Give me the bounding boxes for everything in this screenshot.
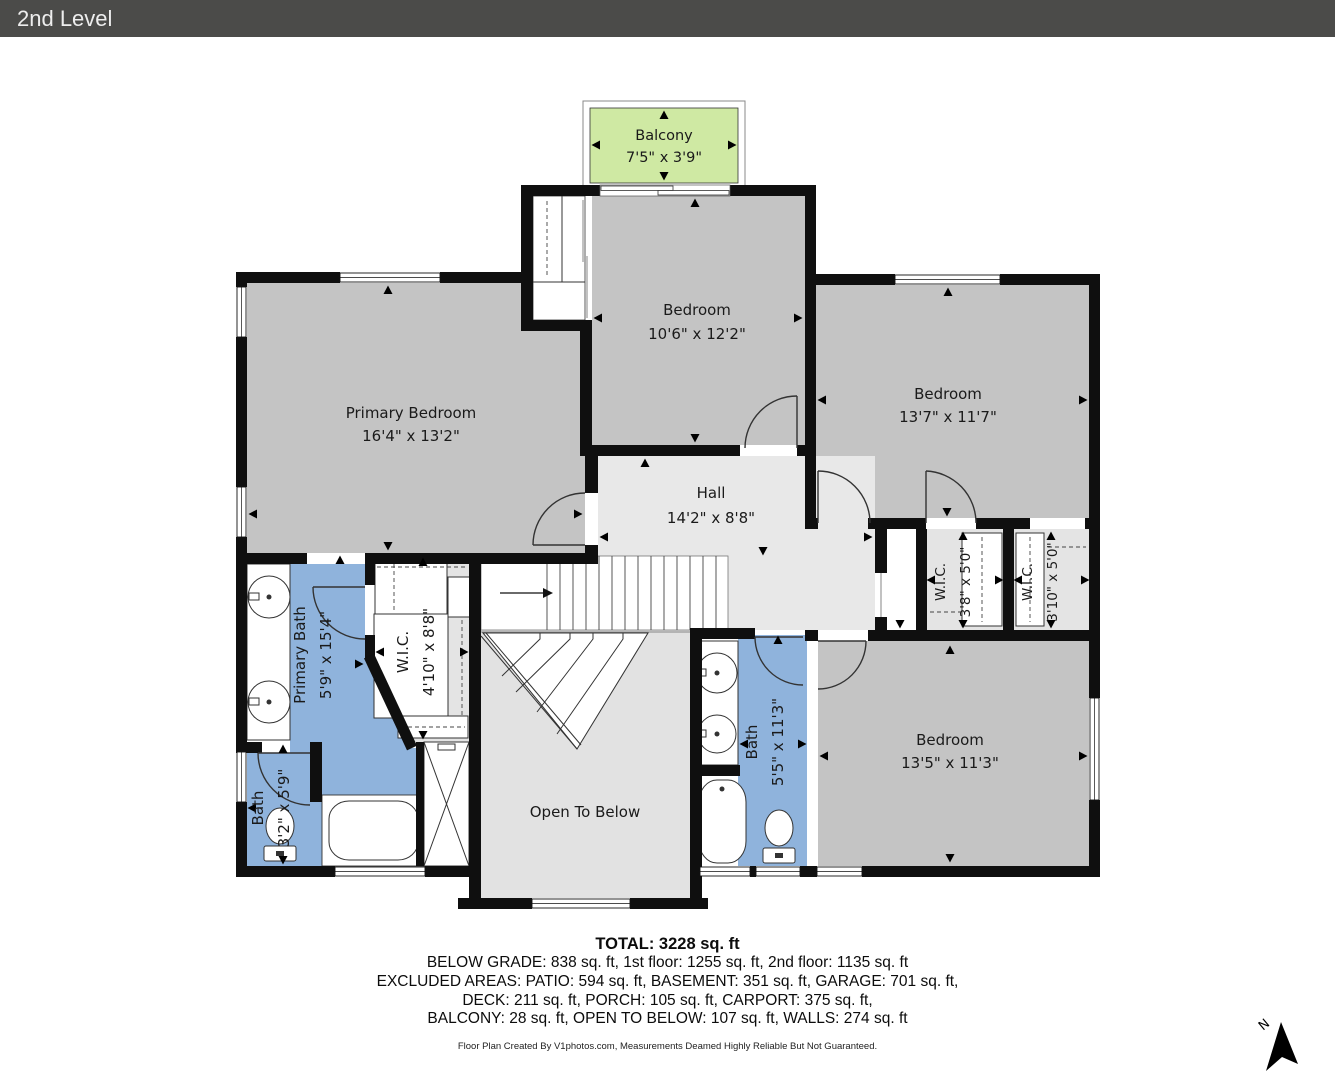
page-header: 2nd Level — [0, 0, 1335, 37]
label-bedroom-right: Bedroom — [914, 385, 982, 403]
label-primary-bath: Primary Bath — [291, 606, 309, 704]
bathtub-icon — [329, 801, 418, 860]
area-summary: TOTAL: 3228 sq. ft BELOW GRADE: 838 sq. … — [0, 934, 1335, 1052]
summary-line: BALCONY: 28 sq. ft, OPEN TO BELOW: 107 s… — [0, 1010, 1335, 1029]
label-bath-hall-dims: 5'5" x 11'3" — [769, 698, 787, 786]
label-bedroom-bottom-dims: 13'5" x 11'3" — [901, 754, 999, 772]
label-bath-small: Bath — [249, 791, 267, 826]
label-bedroom-right-dims: 13'7" x 11'7" — [899, 408, 997, 426]
page-title: 2nd Level — [17, 6, 112, 32]
toilet-icon — [765, 810, 793, 846]
room-balcony — [590, 108, 738, 183]
floor-plan-page: 2nd Level — [0, 0, 1335, 1080]
label-hall-dims: 14'2" x 8'8" — [667, 509, 755, 527]
label-bedroom-top: Bedroom — [663, 301, 731, 319]
label-wic-right: W.I.C. — [1020, 563, 1036, 601]
balcony-sliding-door — [600, 185, 730, 196]
room-fills — [247, 101, 1089, 898]
label-open-to-below: Open To Below — [530, 803, 641, 821]
label-bath-hall: Bath — [743, 725, 761, 760]
summary-line: BELOW GRADE: 838 sq. ft, 1st floor: 1255… — [0, 954, 1335, 973]
summary-line: DECK: 211 sq. ft, PORCH: 105 sq. ft, CAR… — [0, 992, 1335, 1011]
label-primary-bedroom: Primary Bedroom — [346, 404, 477, 422]
label-balcony: Balcony — [635, 128, 693, 144]
label-primary-bedroom-dims: 16'4" x 13'2" — [362, 427, 460, 445]
label-bedroom-bottom: Bedroom — [916, 731, 984, 749]
disclaimer-text: Floor Plan Created By V1photos.com, Meas… — [0, 1041, 1335, 1052]
label-hall: Hall — [697, 484, 726, 502]
label-wic-right-dims: 3'10" x 5'0" — [1045, 542, 1061, 621]
label-wic-left: W.I.C. — [933, 563, 949, 601]
label-bath-small-dims: 3'2" x 5'9" — [275, 769, 293, 848]
room-vestibule — [887, 529, 916, 630]
summary-line: EXCLUDED AREAS: PATIO: 594 sq. ft, BASEM… — [0, 973, 1335, 992]
label-wic-main: W.I.C. — [394, 631, 412, 673]
label-bedroom-top-dims: 10'6" x 12'2" — [648, 325, 746, 343]
room-bedroom-top — [592, 196, 805, 445]
bathtub-icon — [699, 780, 746, 863]
label-wic-left-dims: 3'8" x 5'0" — [958, 547, 974, 618]
floor-plan: Balcony 7'5" x 3'9" Primary Bedroom 16'4… — [0, 0, 1335, 1080]
total-area: TOTAL: 3228 sq. ft — [0, 934, 1335, 954]
stairs-upper — [481, 556, 728, 632]
label-primary-bath-dims: 5'9" x 15'4" — [317, 611, 335, 699]
label-balcony-dims: 7'5" x 3'9" — [626, 150, 702, 166]
label-wic-main-dims: 4'10" x 8'8" — [420, 608, 438, 696]
